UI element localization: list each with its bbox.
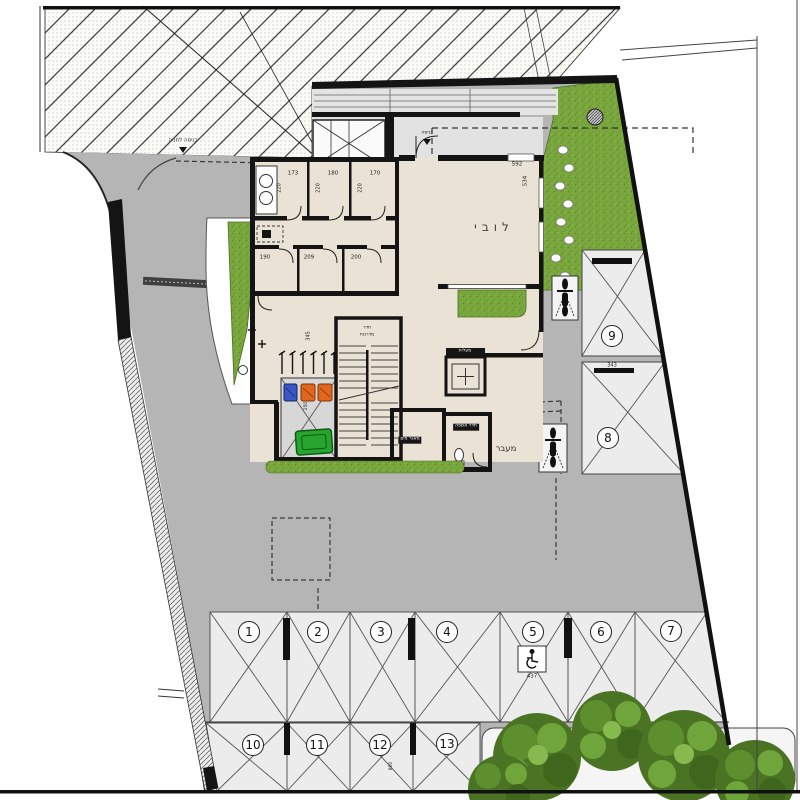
site-plan: לובי מעבר כניסה כניסה לחניה חדר מדרגות מ… [0,0,800,800]
dim-storage-depth: 220 [278,183,283,193]
water-tank-label: מאגר מים [398,437,421,444]
parking-number-1: 1 [238,621,260,643]
dim-lobby-width: 592 [512,162,523,168]
patio-garden [458,290,526,317]
entrance-arrow-icon [423,139,431,145]
service-column [256,166,277,214]
accessible-stall-marker [518,646,546,672]
stairwell-label: חדר [363,327,371,332]
waste-bin-orange-2 [318,384,332,401]
garbage-room-label: חדר אשפה [453,424,479,431]
stairwell-label: מדרגות [360,334,374,339]
dim-row2-depth: 800 [390,762,395,771]
parking-number-3: 3 [370,621,392,643]
dim-storage-3: 170 [370,171,381,177]
dim-storage-1: 173 [288,171,299,177]
plan-graphics [0,0,800,800]
dim-bin-area: 250 [305,402,310,411]
dim-bike-rack: 345 [307,331,312,341]
parking-number-10: 10 [242,734,264,756]
parking-entrance-arrow-icon [179,147,187,153]
dim-storage-5: 209 [304,255,315,261]
waste-bin-orange-1 [301,384,315,401]
south-garden-band [266,461,464,473]
parking-number-4: 4 [436,621,458,643]
dim-lobby-depth: 534 [523,176,529,187]
dim-accessible: 437 [527,674,538,680]
wc-fixture [455,449,464,462]
parking-number-2: 2 [307,621,329,643]
parking-number-8: 8 [597,427,619,449]
parking-entrance-label: כניסה לחניה [169,138,198,144]
dim-storage-depth: 220 [317,183,322,193]
parking-number-6: 6 [590,621,612,643]
dim-storage-depth: 220 [359,183,364,193]
dim-storage-2: 180 [328,171,339,177]
entrance-canopy [312,89,558,117]
parking-number-11: 11 [306,734,328,756]
drain-icon [587,109,603,125]
motorcycle-bay-lower [539,424,567,472]
parking-number-7: 7 [660,620,682,642]
parking-row-1 [210,612,726,722]
waste-bin-green [295,429,333,455]
parking-stall-10 [206,723,287,791]
elevator-label: מעלית [457,349,474,356]
motorcycle-bay-upper [552,276,578,320]
dim-storage-4: 190 [260,255,271,261]
waste-bin-blue [284,384,297,401]
parking-number-13: 13 [436,733,458,755]
lobby-label: לובי [474,221,514,233]
parking-stall-9 [582,250,663,356]
bin-area [281,378,337,460]
parking-number-9: 9 [601,325,623,347]
parking-number-12: 12 [369,734,391,756]
dim-storage-6: 200 [351,255,362,261]
passage-label: מעבר [496,445,517,454]
parking-number-5: 5 [522,621,544,643]
entrance-label: כניסה [421,132,432,137]
dim-stacker-gap: 343 [607,364,617,369]
